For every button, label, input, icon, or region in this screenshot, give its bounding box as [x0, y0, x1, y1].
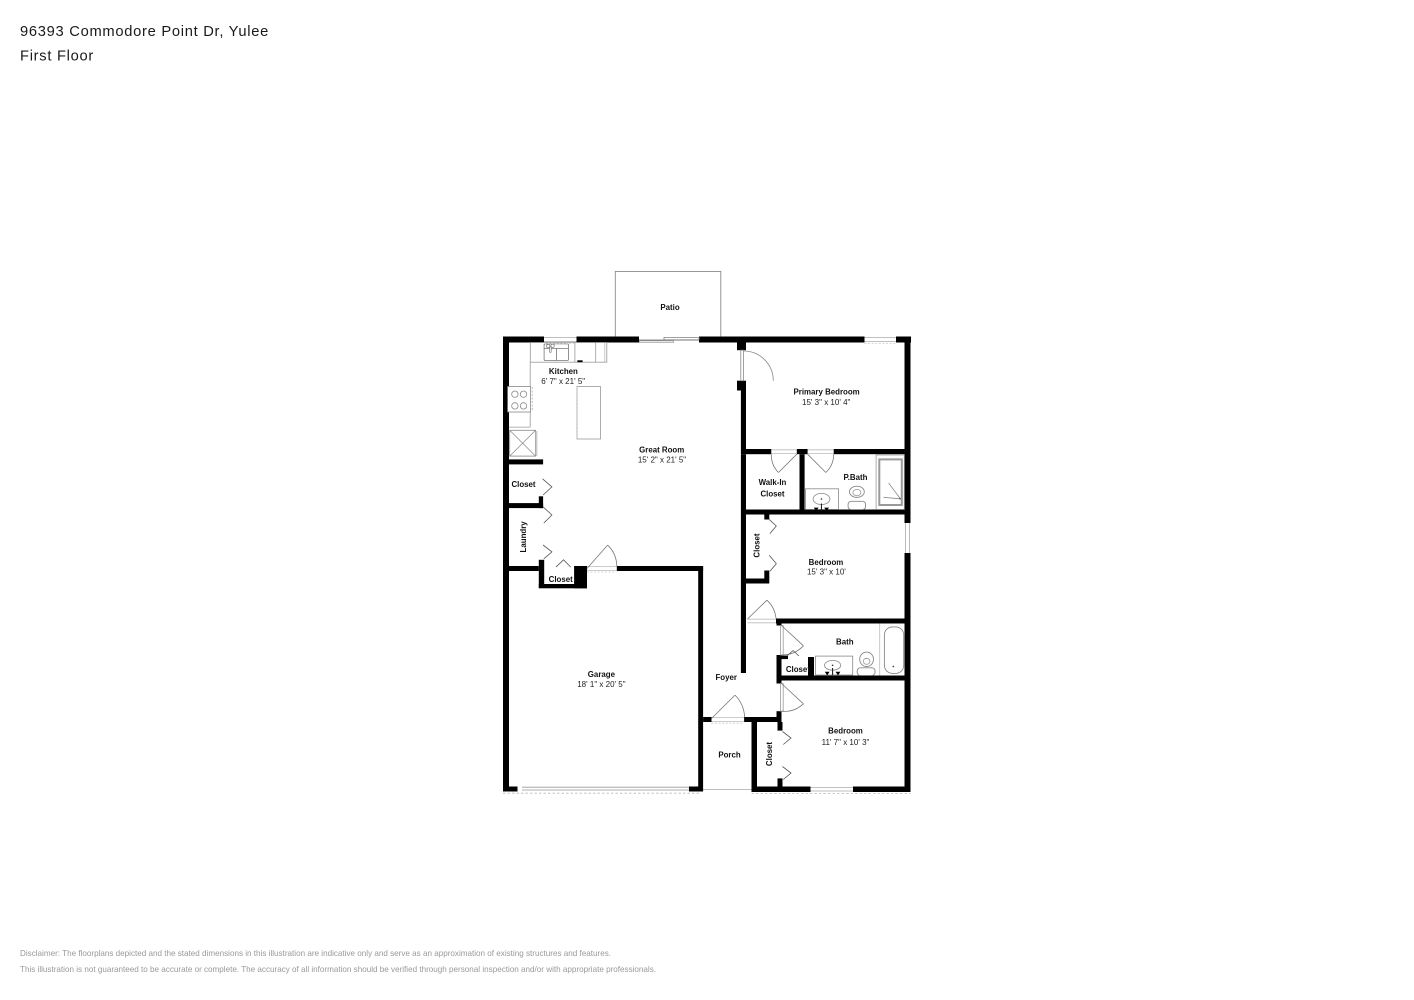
svg-text:96393 Commodore Point Dr, Yule: 96393 Commodore Point Dr, Yulee	[20, 24, 269, 40]
svg-text:Garage: Garage	[588, 670, 616, 679]
svg-text:Patio: Patio	[660, 303, 679, 312]
svg-text:P.Bath: P.Bath	[844, 473, 868, 482]
svg-text:Great Room: Great Room	[639, 445, 684, 454]
svg-text:First Floor: First Floor	[20, 49, 94, 65]
svg-text:Closet: Closet	[765, 742, 774, 766]
svg-text:15' 2" x 21' 5": 15' 2" x 21' 5"	[638, 456, 686, 465]
svg-text:Closet: Closet	[549, 575, 573, 584]
svg-text:Closet: Closet	[752, 533, 761, 557]
svg-text:15' 3" x 10' 4": 15' 3" x 10' 4"	[802, 398, 850, 407]
svg-text:Bedroom: Bedroom	[828, 727, 863, 736]
svg-text:Disclaimer: The floorplans dep: Disclaimer: The floorplans depicted and …	[20, 949, 611, 958]
svg-text:Kitchen: Kitchen	[549, 367, 578, 376]
svg-text:Bath: Bath	[836, 637, 854, 646]
svg-text:Walk-In: Walk-In	[759, 478, 787, 487]
svg-text:Closet: Closet	[786, 665, 810, 674]
svg-text:Primary Bedroom: Primary Bedroom	[793, 388, 859, 397]
svg-text:Closet: Closet	[511, 480, 535, 489]
svg-text:Porch: Porch	[718, 751, 741, 760]
svg-text:Bedroom: Bedroom	[809, 558, 844, 567]
svg-text:Closet: Closet	[760, 489, 784, 498]
svg-text:Foyer: Foyer	[715, 673, 737, 682]
svg-text:This illustration is not guara: This illustration is not guaranteed to b…	[20, 965, 656, 974]
svg-text:6' 7" x 21' 5": 6' 7" x 21' 5"	[541, 377, 585, 386]
svg-text:Laundry: Laundry	[519, 521, 528, 553]
svg-text:15' 3" x 10': 15' 3" x 10'	[807, 567, 846, 576]
svg-text:18' 1" x 20' 5": 18' 1" x 20' 5"	[577, 680, 625, 689]
svg-text:11' 7" x 10' 3": 11' 7" x 10' 3"	[822, 738, 870, 747]
